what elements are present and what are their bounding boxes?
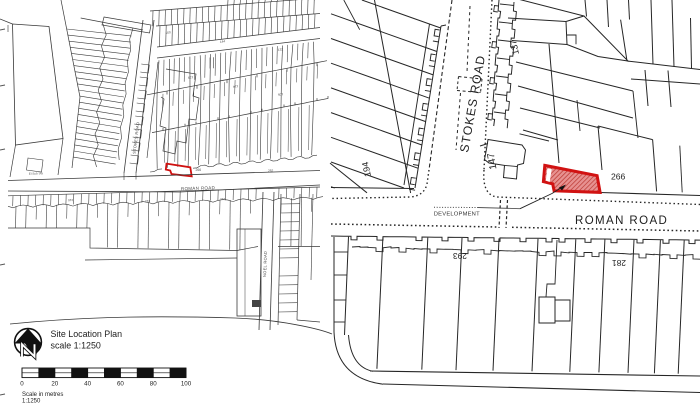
svg-text:100: 100 (181, 381, 192, 388)
svg-text:60: 60 (117, 381, 124, 388)
svg-text:Site Location Plan: Site Location Plan (51, 329, 123, 339)
svg-text:192: 192 (145, 199, 150, 203)
svg-text:266: 266 (611, 172, 626, 182)
svg-text:0: 0 (20, 381, 24, 388)
svg-text:Scale in metres: Scale in metres (22, 392, 63, 398)
svg-text:129: 129 (187, 75, 193, 80)
svg-text:160: 160 (165, 30, 171, 35)
svg-text:80: 80 (150, 381, 157, 388)
svg-text:293: 293 (453, 251, 467, 261)
svg-text:1:1250: 1:1250 (22, 399, 41, 405)
svg-text:114: 114 (233, 84, 239, 89)
svg-text:211: 211 (220, 197, 225, 201)
svg-text:ROMAN ROAD: ROMAN ROAD (575, 215, 668, 227)
svg-text:144: 144 (220, 39, 226, 44)
svg-text:266: 266 (196, 168, 202, 172)
svg-text:DEVELOPMENT: DEVELOPMENT (434, 211, 480, 217)
svg-text:El Sub Sta: El Sub Sta (29, 171, 44, 176)
svg-text:105: 105 (277, 92, 283, 97)
svg-text:NOEL ROAD: NOEL ROAD (262, 251, 268, 277)
svg-text:scale 1:1250: scale 1:1250 (51, 341, 101, 351)
svg-text:190: 190 (68, 198, 73, 202)
svg-text:281: 281 (612, 258, 626, 268)
svg-text:40: 40 (84, 381, 91, 388)
svg-text:20: 20 (51, 381, 58, 388)
